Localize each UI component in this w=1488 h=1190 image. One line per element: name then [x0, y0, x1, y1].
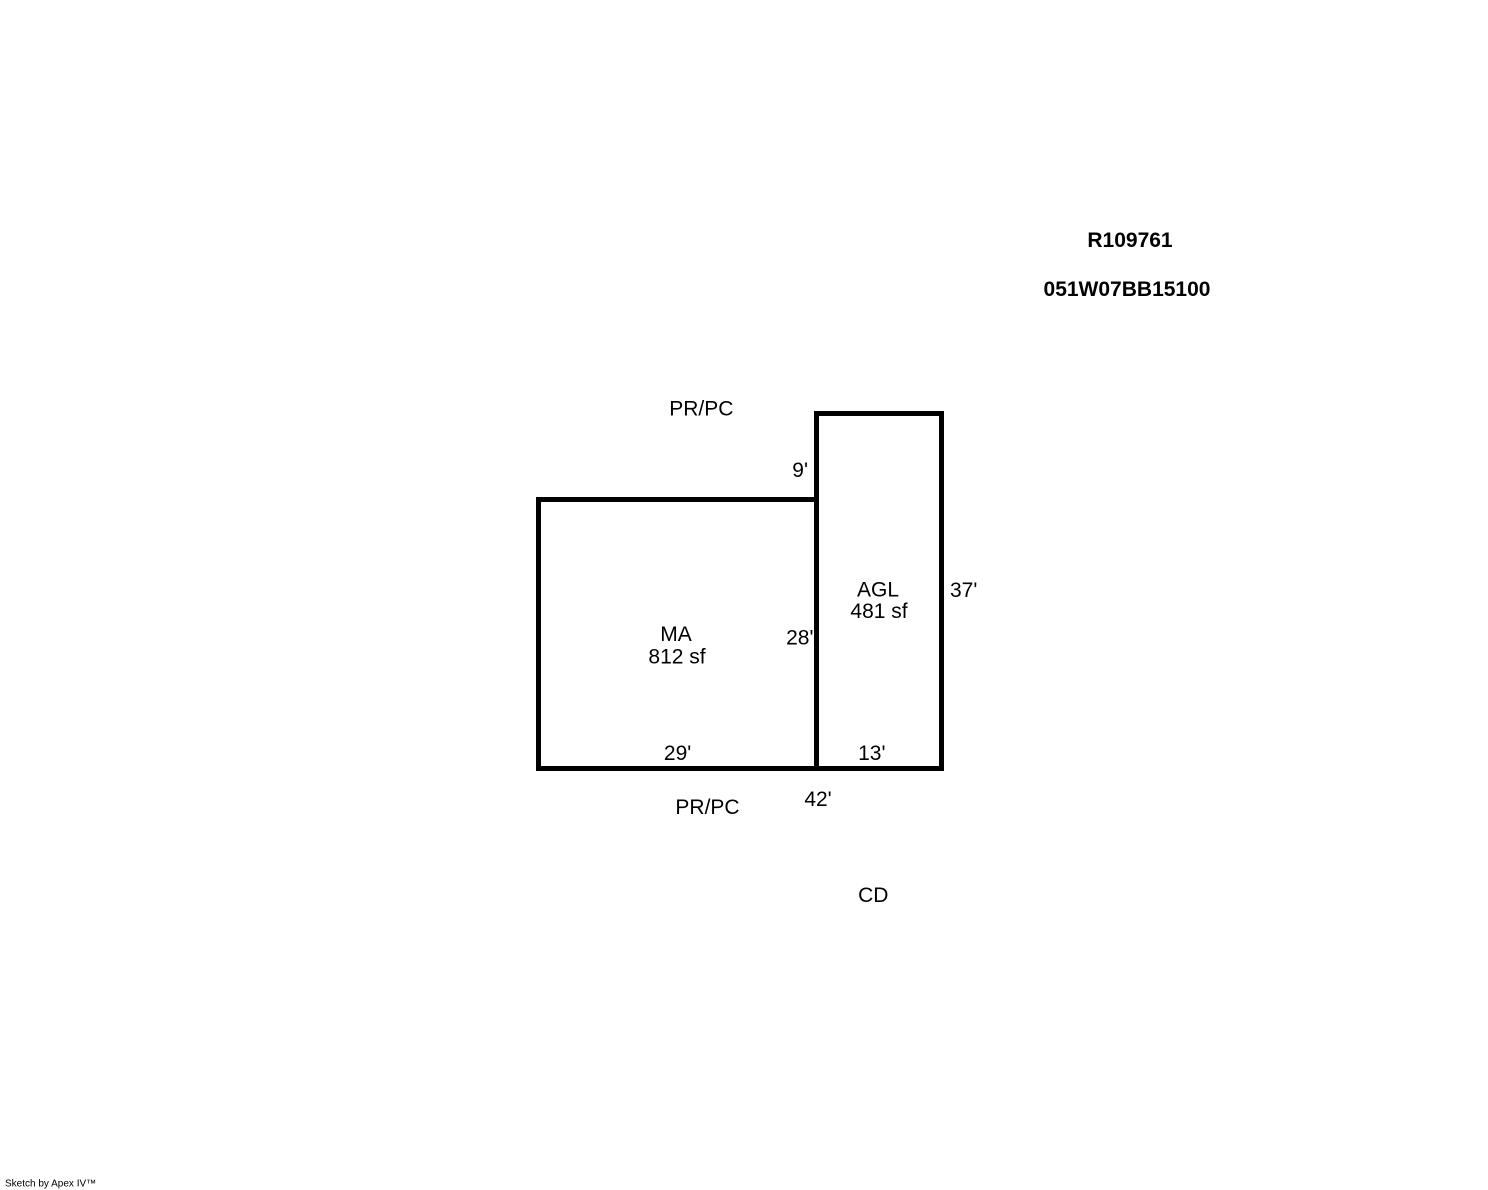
svg-text:481 sf: 481 sf	[850, 600, 907, 623]
svg-text:37': 37'	[950, 579, 977, 602]
svg-text:29': 29'	[664, 742, 691, 765]
svg-text:051W07BB15100: 051W07BB15100	[1044, 278, 1211, 301]
svg-text:42': 42'	[804, 788, 831, 811]
svg-text:MA: MA	[660, 623, 692, 646]
svg-text:9': 9'	[792, 459, 808, 482]
svg-text:AGL: AGL	[857, 578, 899, 601]
svg-text:PR/PC: PR/PC	[669, 397, 733, 420]
svg-text:R109761: R109761	[1087, 229, 1173, 252]
svg-text:Sketch by Apex IV™: Sketch by Apex IV™	[5, 1178, 96, 1189]
svg-text:13': 13'	[858, 742, 885, 765]
svg-text:PR/PC: PR/PC	[675, 796, 739, 819]
svg-text:28': 28'	[786, 627, 813, 650]
svg-text:CD: CD	[858, 884, 888, 907]
svg-text:812 sf: 812 sf	[648, 645, 705, 668]
